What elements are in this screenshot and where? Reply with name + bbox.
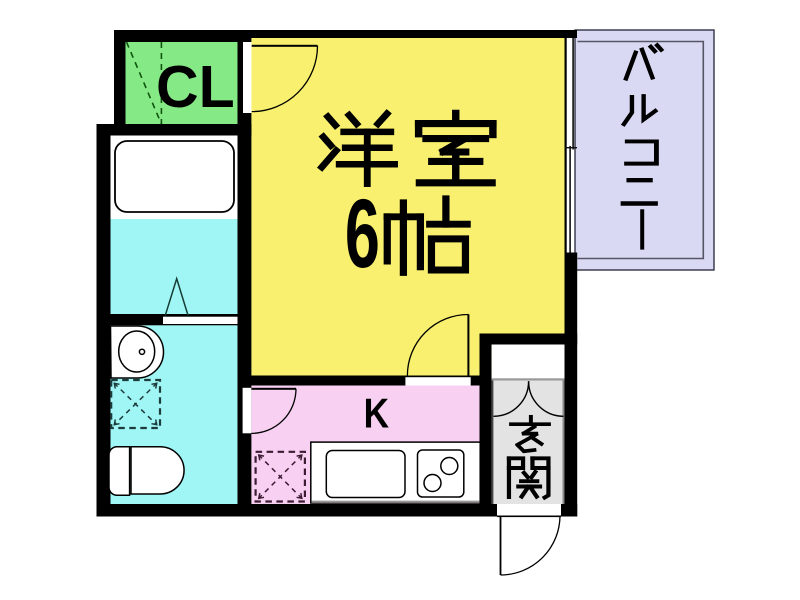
svg-text:6: 6: [345, 180, 380, 288]
svg-text:CL: CL: [156, 54, 235, 120]
svg-text:K: K: [364, 391, 390, 437]
